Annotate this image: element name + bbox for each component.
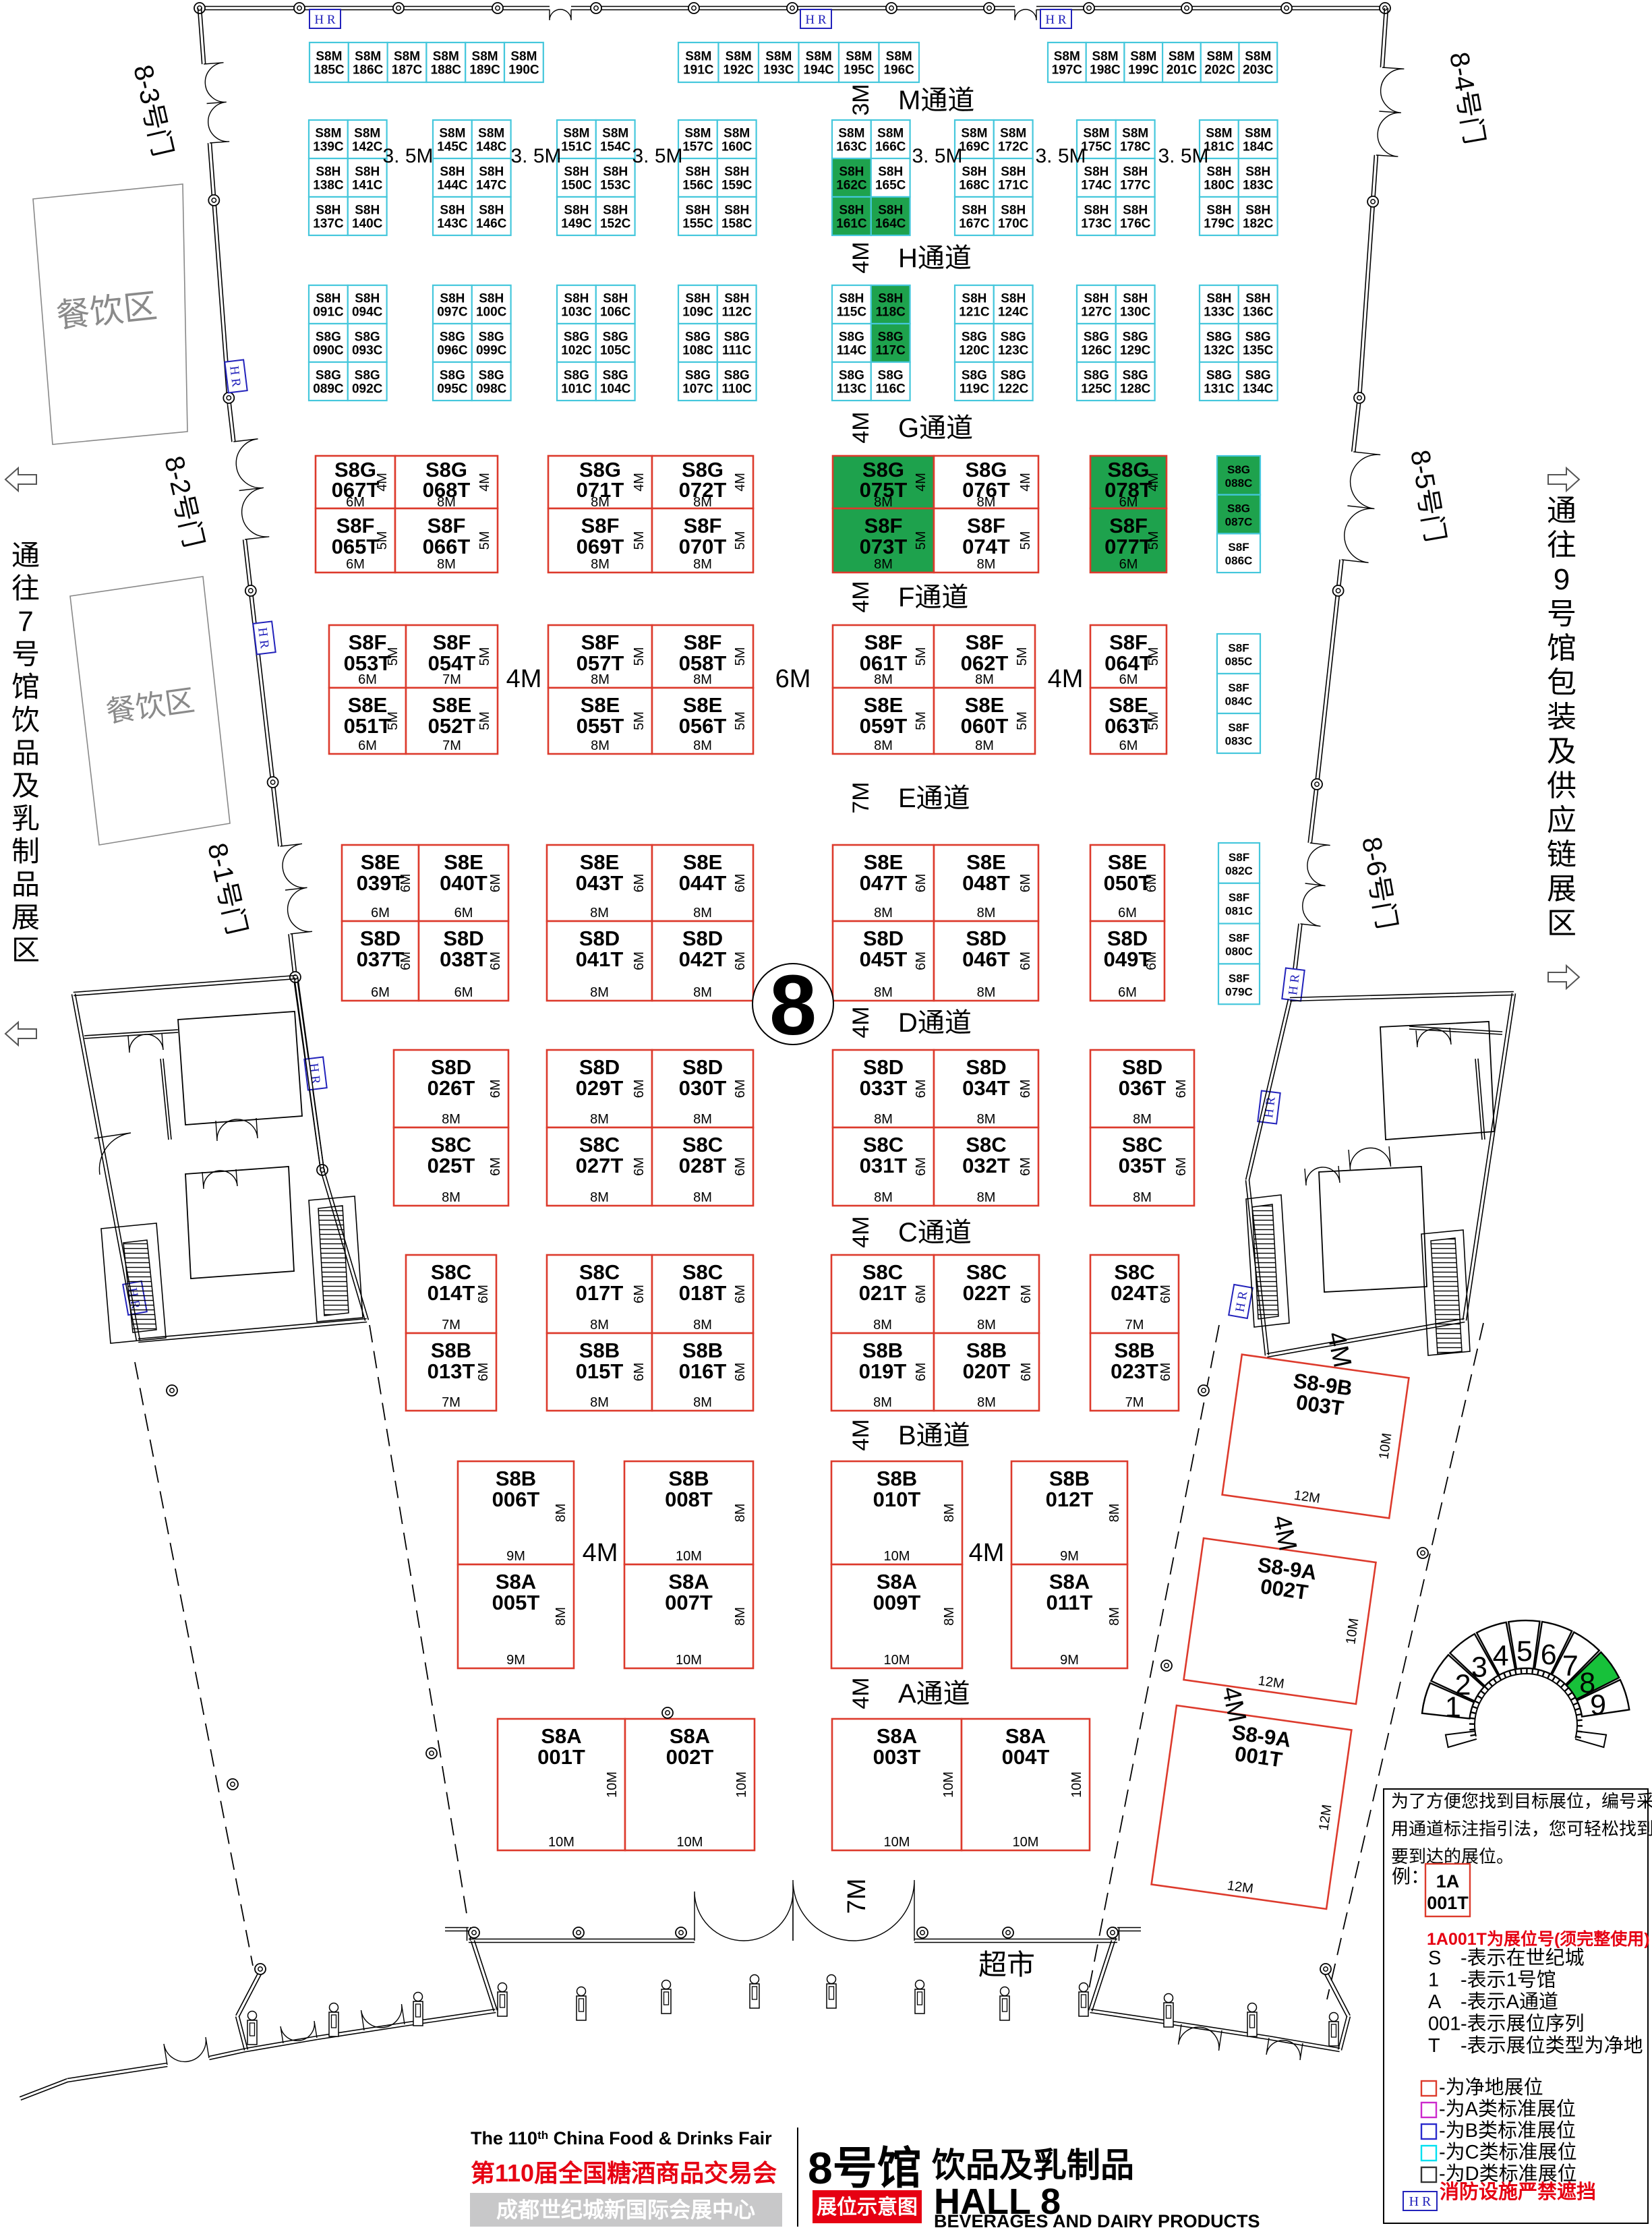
- svg-text:S8B: S8B: [668, 1467, 709, 1490]
- svg-text:105C: 105C: [600, 344, 631, 358]
- svg-text:121C: 121C: [959, 305, 990, 320]
- svg-text:S8E: S8E: [966, 850, 1006, 874]
- svg-text:125C: 125C: [1081, 382, 1112, 397]
- svg-text:5M: 5M: [733, 711, 748, 730]
- svg-text:101C: 101C: [561, 382, 592, 397]
- svg-text:5M: 5M: [914, 647, 928, 666]
- svg-text:为了方便您找到目标展位，编号采: 为了方便您找到目标展位，编号采: [1391, 1791, 1652, 1811]
- svg-text:026T: 026T: [427, 1076, 475, 1100]
- svg-text:4M: 4M: [583, 1539, 618, 1567]
- svg-text:S8F: S8F: [1229, 891, 1249, 904]
- svg-text:158C: 158C: [721, 217, 753, 231]
- svg-text:7M: 7M: [1125, 1395, 1144, 1410]
- svg-text:S8H: S8H: [1123, 165, 1148, 179]
- svg-text:S8H: S8H: [878, 292, 903, 306]
- svg-text:4M: 4M: [632, 473, 647, 492]
- svg-text:10M: 10M: [734, 1771, 749, 1798]
- svg-text:S8E: S8E: [1109, 693, 1148, 717]
- svg-text:6M: 6M: [1118, 906, 1137, 920]
- svg-text:S8H: S8H: [564, 292, 589, 306]
- svg-text:5M: 5M: [386, 647, 401, 666]
- svg-text:013T: 013T: [427, 1359, 475, 1383]
- svg-text:093C: 093C: [352, 344, 383, 358]
- svg-text:6M: 6M: [399, 951, 413, 970]
- svg-text:124C: 124C: [998, 305, 1029, 320]
- svg-text:H通道: H通道: [898, 243, 972, 273]
- svg-text:098C: 098C: [476, 382, 507, 397]
- svg-text:083C: 083C: [1225, 735, 1253, 748]
- svg-text:E通道: E通道: [898, 784, 970, 813]
- svg-text:4M: 4M: [848, 241, 874, 273]
- svg-text:8M: 8M: [590, 1190, 609, 1205]
- svg-text:展: 展: [1547, 873, 1576, 906]
- svg-text:号: 号: [11, 638, 40, 670]
- svg-text:123C: 123C: [998, 344, 1029, 358]
- svg-text:6M: 6M: [476, 1363, 491, 1382]
- svg-text:10M: 10M: [548, 1835, 574, 1850]
- svg-text:006T: 006T: [492, 1488, 540, 1511]
- svg-text:S8H: S8H: [1245, 204, 1270, 218]
- svg-text:S8H: S8H: [479, 165, 504, 179]
- svg-text:001: 001: [1428, 2014, 1461, 2035]
- svg-text:S8H: S8H: [962, 292, 986, 306]
- svg-text:6M: 6M: [454, 906, 473, 920]
- svg-text:022T: 022T: [963, 1281, 1011, 1305]
- svg-text:156C: 156C: [682, 179, 713, 193]
- svg-text:7M: 7M: [442, 1395, 461, 1410]
- svg-text:163C: 163C: [836, 140, 867, 154]
- svg-text:6M: 6M: [1144, 951, 1159, 970]
- svg-text:8M: 8M: [693, 672, 712, 687]
- svg-text:B通道: B通道: [898, 1421, 970, 1450]
- svg-text:S8C: S8C: [682, 1260, 723, 1284]
- svg-text:4M: 4M: [969, 1539, 1005, 1567]
- svg-text:区: 区: [1547, 907, 1576, 940]
- svg-text:S8M: S8M: [478, 127, 504, 141]
- svg-text:8M: 8M: [591, 738, 610, 753]
- svg-text:8M: 8M: [693, 985, 712, 1000]
- svg-text:10M: 10M: [605, 1771, 620, 1798]
- svg-text:077T: 077T: [1104, 535, 1152, 558]
- svg-text:S8G: S8G: [1123, 369, 1148, 383]
- svg-text:6M: 6M: [1158, 1285, 1173, 1303]
- svg-text:8M: 8M: [693, 1190, 712, 1205]
- svg-text:4M: 4M: [375, 473, 390, 492]
- svg-text:6M: 6M: [488, 874, 503, 893]
- svg-text:118C: 118C: [876, 305, 906, 320]
- svg-text:4M: 4M: [477, 473, 492, 492]
- svg-text:015T: 015T: [576, 1359, 624, 1383]
- svg-text:088C: 088C: [1225, 477, 1253, 490]
- svg-text:6M: 6M: [1174, 1080, 1189, 1098]
- svg-text:051T: 051T: [344, 714, 392, 738]
- svg-text:148C: 148C: [476, 140, 507, 154]
- svg-text:S8H: S8H: [1206, 165, 1231, 179]
- svg-text:S8D: S8D: [579, 927, 620, 950]
- svg-text:S8F: S8F: [1228, 682, 1249, 695]
- svg-text:197C: 197C: [1052, 63, 1083, 78]
- svg-text:6M: 6M: [488, 1157, 503, 1176]
- svg-text:065T: 065T: [332, 535, 380, 558]
- svg-text:3: 3: [1471, 1651, 1487, 1684]
- svg-text:8M: 8M: [693, 1112, 712, 1127]
- svg-text:037T: 037T: [357, 947, 405, 971]
- svg-text:10M: 10M: [1069, 1771, 1084, 1798]
- svg-text:169C: 169C: [959, 140, 990, 154]
- svg-text:4M: 4M: [1018, 473, 1033, 492]
- svg-text:5M: 5M: [914, 711, 928, 730]
- svg-text:品: 品: [11, 869, 40, 900]
- svg-text:S8E: S8E: [683, 693, 723, 717]
- svg-text:6M: 6M: [399, 874, 413, 893]
- svg-text:7M: 7M: [843, 1879, 871, 1914]
- svg-text:3. 5M: 3. 5M: [510, 145, 561, 167]
- svg-text:S8D: S8D: [360, 927, 401, 950]
- svg-text:137C: 137C: [313, 217, 344, 231]
- svg-text:7M: 7M: [848, 782, 874, 813]
- svg-text:152C: 152C: [600, 217, 631, 231]
- svg-text:6M: 6M: [733, 1363, 748, 1382]
- svg-text:-表示A通道: -表示A通道: [1461, 1991, 1558, 2013]
- svg-text:5M: 5M: [632, 647, 647, 666]
- svg-text:034T: 034T: [962, 1076, 1010, 1100]
- svg-text:184C: 184C: [1243, 140, 1274, 154]
- svg-text:S8M: S8M: [1169, 50, 1195, 64]
- svg-text:S8H: S8H: [1084, 204, 1109, 218]
- svg-text:S8M: S8M: [765, 50, 792, 64]
- svg-text:5M: 5M: [632, 711, 647, 730]
- svg-text:D通道: D通道: [898, 1008, 972, 1038]
- svg-text:4M: 4M: [848, 411, 874, 443]
- svg-text:S8F: S8F: [581, 630, 620, 654]
- svg-text:S8H: S8H: [603, 204, 628, 218]
- svg-text:6M: 6M: [914, 1080, 928, 1098]
- svg-text:S8H: S8H: [440, 204, 465, 218]
- svg-text:6M: 6M: [632, 951, 647, 970]
- svg-text:5M: 5M: [477, 711, 492, 730]
- svg-text:1A: 1A: [1436, 1871, 1460, 1891]
- svg-text:8M: 8M: [942, 1607, 957, 1626]
- svg-text:4M: 4M: [848, 1006, 874, 1038]
- svg-text:027T: 027T: [576, 1154, 624, 1177]
- svg-text:196C: 196C: [883, 63, 914, 78]
- svg-text:S8E: S8E: [580, 850, 620, 874]
- svg-text:6M: 6M: [775, 665, 811, 693]
- svg-text:6M: 6M: [1018, 1080, 1033, 1098]
- svg-text:8M: 8M: [873, 1395, 892, 1410]
- svg-text:6M: 6M: [914, 874, 928, 893]
- svg-text:H R: H R: [1045, 13, 1066, 27]
- svg-text:079C: 079C: [1225, 985, 1253, 998]
- svg-text:S8F: S8F: [1229, 972, 1249, 985]
- svg-text:S8M: S8M: [354, 127, 380, 141]
- svg-text:108C: 108C: [682, 344, 713, 358]
- svg-text:S8A: S8A: [541, 1724, 581, 1748]
- svg-text:S8B: S8B: [496, 1467, 536, 1490]
- svg-text:179C: 179C: [1204, 217, 1235, 231]
- svg-text:044T: 044T: [679, 871, 727, 895]
- svg-text:10M: 10M: [1013, 1835, 1039, 1850]
- svg-text:C通道: C通道: [898, 1218, 972, 1248]
- svg-text:191C: 191C: [683, 63, 714, 78]
- svg-text:S8H: S8H: [685, 204, 710, 218]
- svg-text:S8H: S8H: [1206, 204, 1231, 218]
- svg-text:S8B: S8B: [1114, 1339, 1154, 1362]
- svg-text:S8G: S8G: [1227, 502, 1250, 515]
- svg-text:S8M: S8M: [724, 127, 750, 141]
- svg-text:S8B: S8B: [862, 1339, 903, 1362]
- svg-text:S8G: S8G: [440, 369, 465, 383]
- svg-text:134C: 134C: [1243, 382, 1274, 397]
- svg-text:S8H: S8H: [316, 165, 341, 179]
- svg-text:制: 制: [11, 835, 40, 867]
- svg-text:029T: 029T: [576, 1076, 624, 1100]
- svg-text:6M: 6M: [914, 1363, 928, 1382]
- svg-text:119C: 119C: [960, 382, 990, 397]
- svg-text:S8H: S8H: [316, 292, 341, 306]
- svg-text:6M: 6M: [914, 1157, 928, 1176]
- svg-text:S8G: S8G: [355, 369, 380, 383]
- svg-text:S8G: S8G: [440, 330, 465, 345]
- svg-text:S8B: S8B: [682, 1339, 723, 1362]
- svg-text:S8F: S8F: [1109, 514, 1148, 537]
- svg-text:6M: 6M: [914, 1285, 928, 1303]
- svg-text:S8H: S8H: [564, 165, 589, 179]
- svg-text:S8C: S8C: [431, 1133, 471, 1156]
- svg-text:S8G: S8G: [603, 369, 628, 383]
- svg-text:S8H: S8H: [962, 204, 986, 218]
- svg-text:S8H: S8H: [440, 292, 465, 306]
- svg-text:128C: 128C: [1120, 382, 1151, 397]
- svg-text:H R: H R: [227, 365, 243, 388]
- svg-text:090C: 090C: [313, 344, 344, 358]
- svg-text:136C: 136C: [1243, 305, 1274, 320]
- svg-text:3. 5M: 3. 5M: [912, 145, 962, 167]
- svg-text:5M: 5M: [1015, 647, 1030, 666]
- svg-text:8M: 8M: [874, 672, 893, 687]
- svg-text:203C: 203C: [1243, 63, 1274, 78]
- svg-text:S8G: S8G: [724, 330, 750, 345]
- svg-text:028T: 028T: [679, 1154, 727, 1177]
- svg-text:S8M: S8M: [1000, 127, 1026, 141]
- svg-text:033T: 033T: [860, 1076, 908, 1100]
- svg-text:031T: 031T: [860, 1154, 908, 1177]
- svg-text:S8M: S8M: [439, 127, 465, 141]
- svg-text:092C: 092C: [352, 382, 383, 397]
- svg-text:S8D: S8D: [966, 1055, 1006, 1079]
- svg-text:001T: 001T: [537, 1745, 585, 1769]
- svg-text:107C: 107C: [682, 382, 713, 397]
- svg-text:011T: 011T: [1046, 1591, 1093, 1614]
- svg-text:S8E: S8E: [361, 850, 401, 874]
- svg-text:115C: 115C: [837, 305, 867, 320]
- svg-text:S8H: S8H: [1206, 292, 1231, 306]
- svg-text:S8F: S8F: [1228, 722, 1249, 734]
- svg-text:055T: 055T: [577, 714, 624, 738]
- svg-text:S8B: S8B: [1049, 1467, 1090, 1490]
- svg-text:S8M: S8M: [1207, 50, 1233, 64]
- svg-text:S8D: S8D: [863, 1055, 904, 1079]
- svg-text:S8G: S8G: [839, 330, 864, 345]
- svg-text:062T: 062T: [961, 651, 1009, 675]
- svg-text:9M: 9M: [506, 1549, 525, 1564]
- svg-text:5M: 5M: [1146, 711, 1161, 730]
- svg-text:040T: 040T: [440, 871, 488, 895]
- svg-text:馆: 馆: [11, 671, 40, 703]
- svg-text:8M: 8M: [437, 557, 456, 572]
- svg-text:111C: 111C: [722, 344, 752, 358]
- svg-text:017T: 017T: [576, 1281, 624, 1305]
- svg-text:S8H: S8H: [1001, 292, 1026, 306]
- svg-text:8M: 8M: [554, 1607, 568, 1626]
- svg-text:043T: 043T: [576, 871, 624, 895]
- svg-text:S8D: S8D: [682, 1055, 723, 1079]
- svg-text:7M: 7M: [1125, 1318, 1144, 1332]
- svg-text:9M: 9M: [1060, 1549, 1079, 1564]
- svg-text:8M: 8M: [590, 1395, 609, 1410]
- svg-text:S8H: S8H: [1084, 292, 1109, 306]
- svg-text:052T: 052T: [428, 714, 476, 738]
- svg-text:3. 5M: 3. 5M: [1158, 145, 1208, 167]
- svg-text:及: 及: [1547, 735, 1576, 768]
- svg-text:S8M: S8M: [1083, 127, 1109, 141]
- svg-text:6M: 6M: [1118, 985, 1137, 1000]
- svg-text:081C: 081C: [1225, 905, 1253, 918]
- svg-text:S8D: S8D: [431, 1055, 471, 1079]
- svg-text:6M: 6M: [1174, 1157, 1189, 1176]
- svg-text:144C: 144C: [437, 179, 468, 193]
- svg-text:086C: 086C: [1225, 554, 1253, 567]
- svg-text:A通道: A通道: [898, 1679, 970, 1709]
- svg-text:6M: 6M: [476, 1285, 491, 1303]
- svg-text:S8H: S8H: [724, 165, 749, 179]
- svg-text:4M: 4M: [1048, 665, 1084, 693]
- svg-text:S8F: S8F: [349, 630, 387, 654]
- svg-text:S8H: S8H: [1123, 204, 1148, 218]
- svg-text:号: 号: [1547, 597, 1576, 630]
- svg-text:品: 品: [11, 737, 40, 769]
- svg-text:8M: 8M: [977, 985, 996, 1000]
- svg-text:016T: 016T: [679, 1359, 727, 1383]
- svg-text:8M: 8M: [442, 1112, 461, 1127]
- svg-text:S8G: S8G: [878, 330, 904, 345]
- svg-text:10M: 10M: [677, 1835, 703, 1850]
- svg-text:饮品及乳制品: 饮品及乳制品: [932, 2146, 1134, 2184]
- svg-text:177C: 177C: [1120, 179, 1151, 193]
- svg-text:122C: 122C: [998, 382, 1029, 397]
- svg-text:106C: 106C: [600, 305, 631, 320]
- svg-text:S8G: S8G: [355, 330, 380, 345]
- svg-text:S8A: S8A: [668, 1570, 709, 1593]
- svg-text:S8H: S8H: [564, 204, 589, 218]
- svg-text:S8M: S8M: [472, 50, 498, 64]
- svg-text:6M: 6M: [346, 557, 365, 572]
- svg-text:3. 5M: 3. 5M: [382, 145, 433, 167]
- svg-text:S8F: S8F: [433, 630, 471, 654]
- svg-text:5M: 5M: [386, 711, 401, 730]
- svg-text:S8B: S8B: [579, 1339, 620, 1362]
- svg-text:058T: 058T: [679, 651, 727, 675]
- svg-text:S8M: S8M: [602, 127, 628, 141]
- svg-text:5M: 5M: [375, 531, 390, 550]
- svg-text:饮: 饮: [11, 704, 40, 736]
- svg-text:8M: 8M: [591, 557, 610, 572]
- svg-text:048T: 048T: [962, 871, 1010, 895]
- svg-text:162C: 162C: [836, 179, 867, 193]
- svg-text:154C: 154C: [600, 140, 631, 154]
- svg-text:8M: 8M: [977, 1190, 996, 1205]
- svg-text:S8E: S8E: [683, 850, 723, 874]
- svg-text:132C: 132C: [1204, 344, 1235, 358]
- svg-text:167C: 167C: [959, 217, 990, 231]
- svg-text:059T: 059T: [860, 714, 908, 738]
- svg-text:8M: 8M: [977, 1318, 996, 1332]
- svg-text:S8H: S8H: [1001, 204, 1026, 218]
- svg-text:6M: 6M: [371, 906, 390, 920]
- svg-text:8M: 8M: [873, 1318, 892, 1332]
- svg-text:6M: 6M: [1018, 1157, 1033, 1176]
- svg-text:S8C: S8C: [966, 1260, 1007, 1284]
- svg-text:S8M: S8M: [315, 127, 341, 141]
- svg-text:S8F: S8F: [684, 514, 722, 537]
- svg-text:成都世纪城新国际会展中心: 成都世纪城新国际会展中心: [496, 2198, 755, 2222]
- svg-text:009T: 009T: [873, 1591, 921, 1614]
- svg-text:S8A: S8A: [1049, 1570, 1090, 1593]
- svg-text:H R: H R: [1409, 2194, 1432, 2209]
- svg-text:5M: 5M: [477, 531, 492, 550]
- svg-text:002T: 002T: [666, 1745, 714, 1769]
- svg-text:S8H: S8H: [603, 292, 628, 306]
- svg-text:045T: 045T: [860, 947, 908, 971]
- svg-text:H R: H R: [255, 626, 272, 649]
- svg-text:10M: 10M: [884, 1835, 910, 1850]
- svg-text:S8G: S8G: [1227, 463, 1250, 476]
- svg-text:6M: 6M: [733, 1285, 748, 1303]
- svg-text:073T: 073T: [860, 535, 908, 558]
- svg-text:S8G: S8G: [603, 330, 628, 345]
- svg-text:6M: 6M: [632, 1363, 647, 1382]
- svg-text:089C: 089C: [313, 382, 344, 397]
- svg-text:091C: 091C: [313, 305, 344, 320]
- svg-text:030T: 030T: [679, 1076, 727, 1100]
- svg-text:057T: 057T: [577, 651, 624, 675]
- svg-text:S8G: S8G: [316, 330, 341, 345]
- svg-text:S8C: S8C: [579, 1133, 620, 1156]
- svg-text:-为B类标准展位: -为B类标准展位: [1439, 2119, 1576, 2142]
- svg-text:025T: 025T: [427, 1154, 475, 1177]
- svg-text:T: T: [1428, 2035, 1440, 2057]
- svg-text:4M: 4M: [848, 581, 874, 612]
- svg-text:032T: 032T: [962, 1154, 1010, 1177]
- svg-text:202C: 202C: [1204, 63, 1235, 78]
- svg-text:8M: 8M: [874, 738, 893, 753]
- svg-text:139C: 139C: [313, 140, 344, 154]
- svg-text:9: 9: [1590, 1689, 1606, 1721]
- svg-text:S8H: S8H: [355, 165, 380, 179]
- svg-text:140C: 140C: [352, 217, 383, 231]
- svg-text:007T: 007T: [665, 1591, 713, 1614]
- svg-text:S8A: S8A: [496, 1570, 536, 1593]
- svg-text:BEVERAGES AND DAIRY PRODUCTS: BEVERAGES AND DAIRY PRODUCTS: [934, 2211, 1260, 2230]
- svg-text:8M: 8M: [874, 985, 893, 1000]
- svg-text:095C: 095C: [437, 382, 468, 397]
- svg-text:003T: 003T: [873, 1745, 921, 1769]
- svg-text:8M: 8M: [977, 906, 996, 920]
- svg-text:061T: 061T: [860, 651, 908, 675]
- svg-text:S8G: S8G: [564, 330, 589, 345]
- svg-text:供: 供: [1547, 769, 1576, 802]
- svg-text:066T: 066T: [423, 535, 471, 558]
